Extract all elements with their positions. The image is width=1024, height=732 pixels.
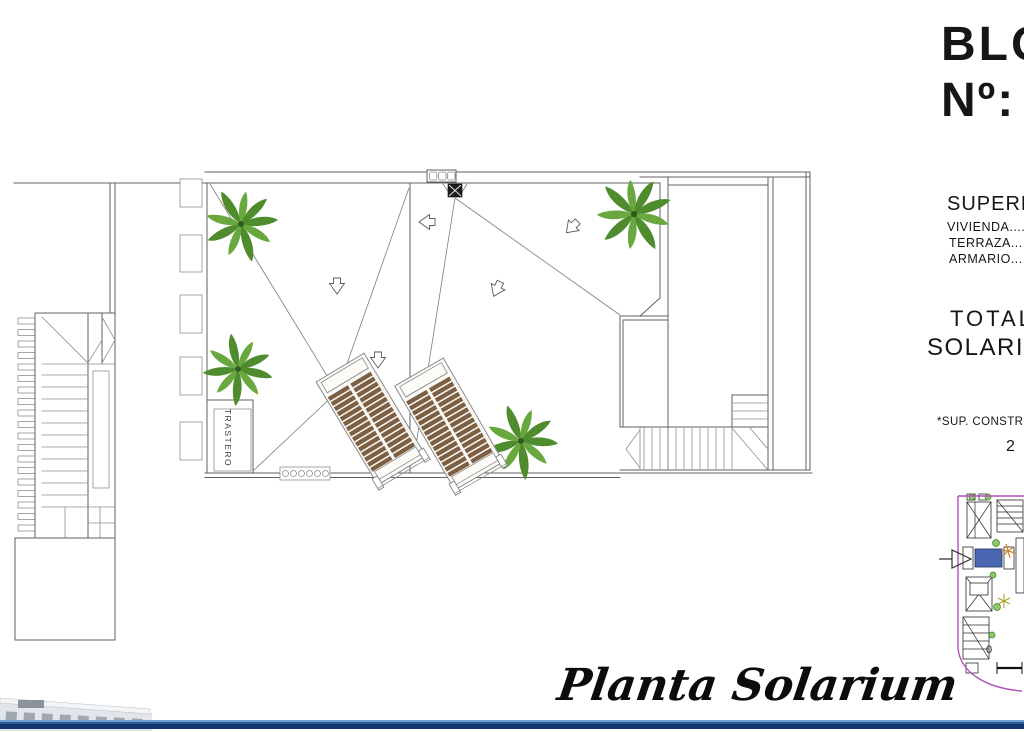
drawing-sheet: TRASTERO BLOQUE Nº: SUPERFICIES VIVIENDA… xyxy=(0,0,1024,732)
title-bloque: BLOQUE xyxy=(941,18,1024,72)
superficie-line-vivienda: VIVIENDA..... xyxy=(947,220,1024,234)
scale-zero-label: 0 xyxy=(986,644,992,656)
planters xyxy=(180,179,202,460)
drain-grate xyxy=(448,184,462,197)
slope-lines xyxy=(210,184,620,471)
stair-left xyxy=(35,313,115,538)
sup-constr-value: 2 xyxy=(1006,438,1015,456)
slope-arrow xyxy=(371,352,386,368)
total-label: TOTAL xyxy=(950,306,1024,332)
title-numero: Nº: xyxy=(941,74,1015,128)
sup-constr-note: *SUP. CONSTRUIDA xyxy=(937,416,1024,428)
storage-grille xyxy=(280,467,330,480)
plan-svg xyxy=(0,0,1024,732)
slope-arrows xyxy=(330,215,583,369)
footer-band xyxy=(0,720,1024,729)
lower-roof-rect xyxy=(15,538,115,640)
louvers xyxy=(18,318,36,531)
key-plan-highlight xyxy=(975,549,1002,567)
superficie-line-terraza: TERRAZA..... xyxy=(949,236,1024,250)
superficies-header: SUPERFICIES xyxy=(947,193,1024,216)
solarium-label: SOLARIUM... xyxy=(927,334,1024,362)
drawing-title: Planta Solarium xyxy=(554,660,927,711)
slope-arrow xyxy=(561,216,583,238)
slope-arrow xyxy=(419,215,435,230)
palm-tree xyxy=(206,189,278,263)
key-plan-scale xyxy=(997,662,1022,674)
slope-arrow xyxy=(487,279,507,300)
vent-box xyxy=(427,170,456,182)
slope-arrow xyxy=(330,278,345,294)
trastero-label: TRASTERO xyxy=(223,403,233,473)
key-plan-buildings xyxy=(963,494,1024,673)
sun-lounger xyxy=(314,352,430,490)
superficie-line-armario: ARMARIO..... xyxy=(949,252,1024,266)
stair-right xyxy=(626,395,768,470)
